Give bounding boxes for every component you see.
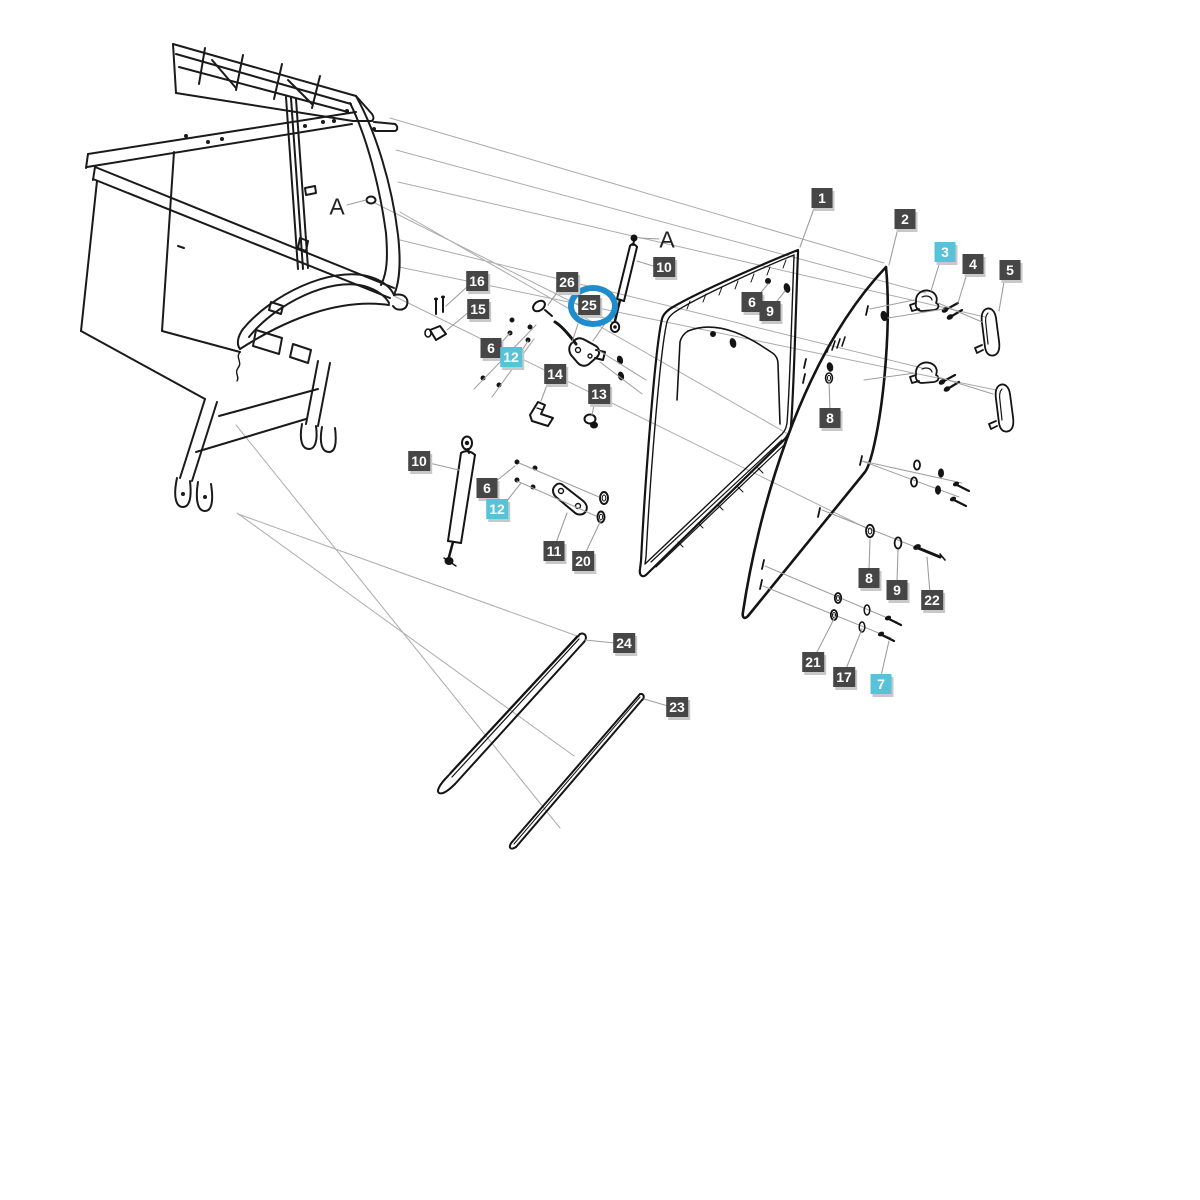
parts-diagram-page: 1234510262516156961214138106121120892221… bbox=[0, 0, 1200, 1200]
part-label-26[interactable]: 26 bbox=[556, 272, 578, 292]
label-leader-lines bbox=[347, 200, 1005, 706]
part-label-6c[interactable]: 6 bbox=[477, 478, 498, 498]
part-label-14[interactable]: 14 bbox=[544, 364, 566, 384]
part-label-24[interactable]: 24 bbox=[613, 633, 635, 653]
cab-frame-drawing bbox=[81, 44, 407, 511]
part-label-21[interactable]: 21 bbox=[802, 652, 824, 672]
part-1-door-seal-drawing bbox=[640, 250, 798, 576]
part-label-2[interactable]: 2 bbox=[895, 209, 916, 229]
part-11-bracket bbox=[515, 460, 609, 523]
part-10-gas-strut-lower bbox=[444, 437, 475, 567]
part-label-9b[interactable]: 9 bbox=[887, 580, 908, 600]
part-label-16[interactable]: 16 bbox=[466, 271, 488, 291]
part-label-7[interactable]: 7 bbox=[871, 674, 892, 694]
part-label-1[interactable]: 1 bbox=[812, 188, 833, 208]
part-label-12b[interactable]: 12 bbox=[486, 499, 508, 519]
part-label-13[interactable]: 13 bbox=[588, 384, 610, 404]
part-label-23[interactable]: 23 bbox=[666, 697, 688, 717]
fastener-rows bbox=[763, 460, 969, 641]
part-24-seal-strip bbox=[438, 634, 586, 794]
marker-a-strut: A bbox=[659, 229, 674, 252]
part-label-10b[interactable]: 10 bbox=[408, 451, 430, 471]
diagram-canvas bbox=[0, 0, 1200, 1200]
part-label-8a[interactable]: 8 bbox=[820, 408, 841, 428]
part-label-6b[interactable]: 6 bbox=[481, 338, 502, 358]
part-label-8b[interactable]: 8 bbox=[859, 568, 880, 588]
part-label-12a[interactable]: 12 bbox=[500, 347, 522, 367]
part-label-17[interactable]: 17 bbox=[833, 667, 855, 687]
marker-a-pillar: A bbox=[329, 196, 344, 219]
part-25-latch-assembly bbox=[425, 296, 646, 429]
part-label-9a[interactable]: 9 bbox=[760, 301, 781, 321]
part-label-15[interactable]: 15 bbox=[467, 299, 489, 319]
part-10-gas-strut-upper bbox=[611, 235, 638, 333]
part-label-20[interactable]: 20 bbox=[572, 551, 594, 571]
part-23-seal-strip bbox=[510, 694, 644, 849]
part-label-22[interactable]: 22 bbox=[921, 590, 943, 610]
part-label-11[interactable]: 11 bbox=[544, 541, 565, 561]
part-label-25[interactable]: 25 bbox=[578, 295, 600, 315]
part-label-4[interactable]: 4 bbox=[963, 254, 984, 274]
part-label-5[interactable]: 5 bbox=[1000, 260, 1021, 280]
part-label-10a[interactable]: 10 bbox=[653, 257, 675, 277]
part-label-3[interactable]: 3 bbox=[935, 242, 956, 262]
